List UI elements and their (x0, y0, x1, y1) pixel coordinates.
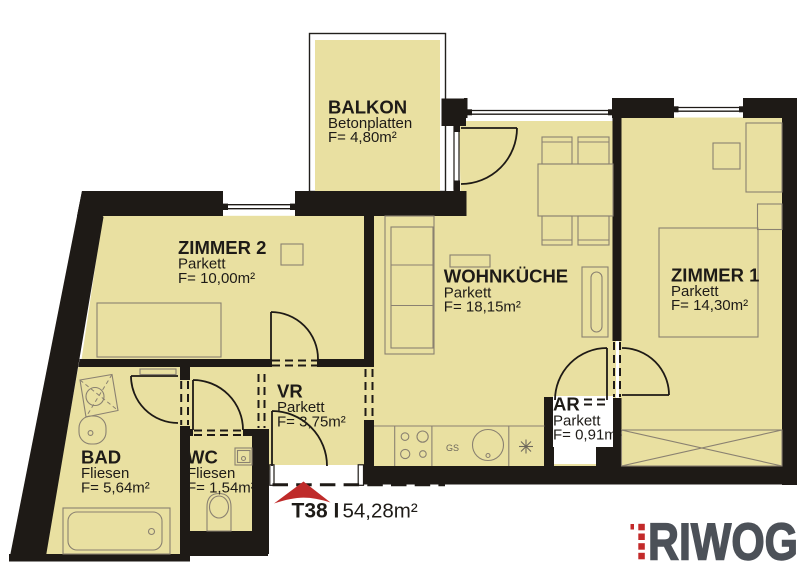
svg-text:F= 10,00m²: F= 10,00m² (178, 270, 255, 287)
svg-text:T38 I: T38 I (292, 500, 340, 523)
svg-text:F= 4,80m²: F= 4,80m² (328, 129, 397, 146)
svg-text:WOHNKÜCHE: WOHNKÜCHE (444, 265, 568, 286)
svg-text:F= 0,91m²: F= 0,91m² (553, 427, 622, 444)
svg-text:RIWOG: RIWOG (648, 513, 798, 563)
svg-text:F= 3,75m²: F= 3,75m² (277, 414, 346, 431)
svg-text:F= 5,64m²: F= 5,64m² (81, 480, 150, 497)
svg-text:F= 18,15m²: F= 18,15m² (444, 299, 521, 316)
svg-text:GS: GS (446, 443, 459, 453)
svg-text:54,28m²: 54,28m² (343, 500, 418, 523)
svg-text:F= 1,54m²: F= 1,54m² (187, 480, 256, 497)
svg-text:F= 14,30m²: F= 14,30m² (671, 297, 748, 314)
